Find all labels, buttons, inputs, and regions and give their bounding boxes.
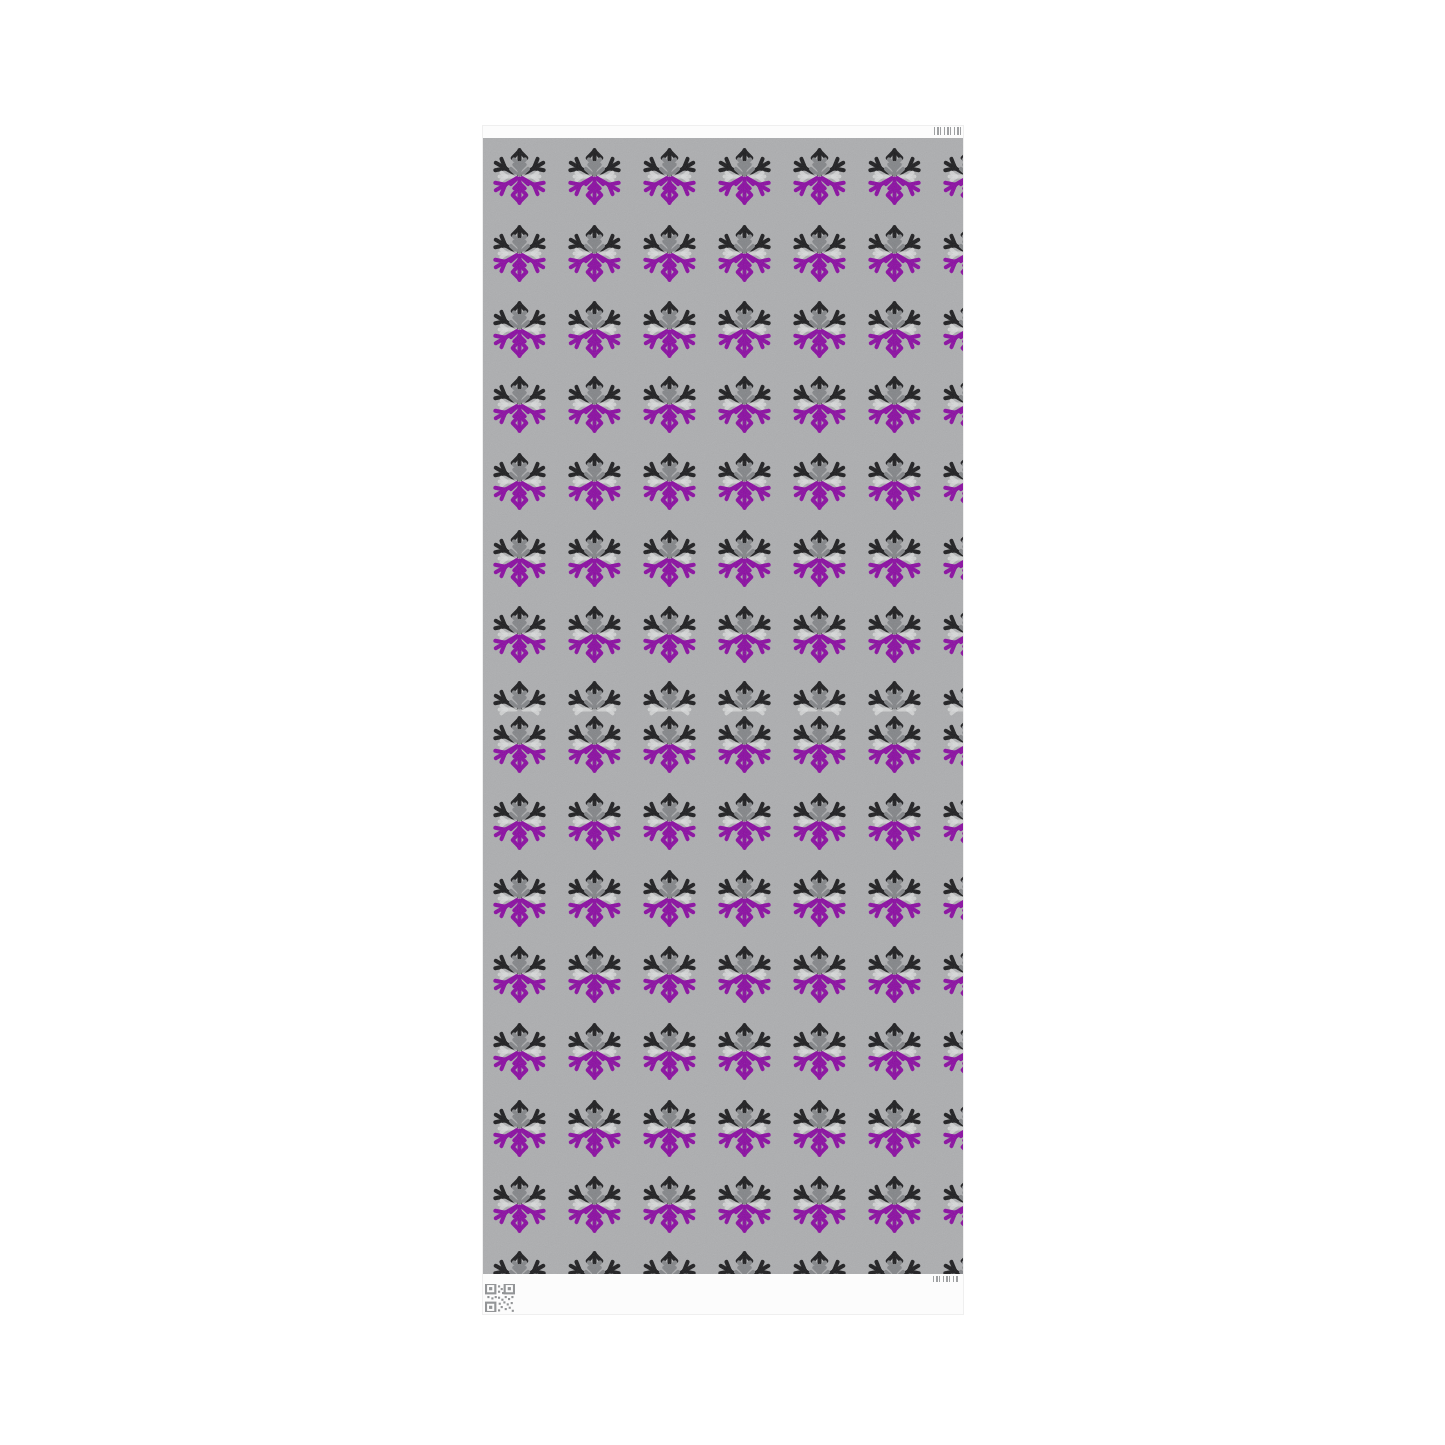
snowflake-geometry: [570, 532, 618, 585]
snowflake-geometry: [495, 1253, 543, 1274]
snowflake-geometry: [945, 795, 963, 848]
snowflake-icon: [641, 946, 698, 1003]
snowflake-geometry: [720, 948, 768, 1001]
snowflake-geometry: [495, 303, 543, 356]
snowflake-icon: [791, 225, 848, 282]
snowflake-geometry: [645, 227, 693, 280]
snowflake-icon: [791, 301, 848, 358]
snowflake-geometry: [870, 872, 918, 925]
snowflake-icon: [566, 453, 623, 510]
snowflake-geometry: [720, 872, 768, 925]
snowflake-geometry: [720, 1025, 768, 1078]
snowflake-icon: [866, 1176, 923, 1233]
snowflake-icon: [866, 530, 923, 587]
snowflake-geometry: [870, 795, 918, 848]
snowflake-icon: [941, 453, 963, 510]
snowflake-geometry: [570, 1102, 618, 1155]
snowflake-icon: [791, 1100, 848, 1157]
snowflake-icon: [641, 301, 698, 358]
snowflake-geometry: [945, 378, 963, 431]
snowflake-icon: [641, 870, 698, 927]
snowflake-icon: [716, 301, 773, 358]
snowflake-geometry: [945, 1253, 963, 1274]
snowflake-icon: [716, 1023, 773, 1080]
snowflake-icon: [566, 1176, 623, 1233]
snowflake-icon: [491, 870, 548, 927]
snowflake-geometry: [570, 455, 618, 508]
snowflake-geometry: [795, 303, 843, 356]
snowflake-geometry: [570, 227, 618, 280]
snowflake-icon: [491, 453, 548, 510]
snowflake-geometry: [645, 948, 693, 1001]
snowflake-icon: [866, 148, 923, 205]
snowflake-geometry: [645, 1025, 693, 1078]
snowflake-icon: [566, 530, 623, 587]
snowflake-geometry: [495, 1102, 543, 1155]
snowflake-geometry: [870, 1253, 918, 1274]
snowflake-geometry: [495, 455, 543, 508]
snowflake-geometry: [570, 872, 618, 925]
snowflake-icon: [866, 606, 923, 663]
snowflake-geometry: [495, 948, 543, 1001]
snowflake-geometry: [645, 608, 693, 661]
snowflake-icon: [566, 870, 623, 927]
snowflake-geometry: [795, 455, 843, 508]
snowflake-geometry: [795, 227, 843, 280]
snowflake-icon: [791, 376, 848, 433]
snowflake-icon: [566, 606, 623, 663]
snowflake-icon: [791, 1023, 848, 1080]
product-mockup: [0, 0, 1445, 1445]
snowflake-geometry: [570, 608, 618, 661]
snowflake-geometry: [720, 795, 768, 848]
snowflake-icon: [866, 376, 923, 433]
snowflake-icon: [641, 530, 698, 587]
snowflake-geometry: [720, 455, 768, 508]
snowflake-geometry: [720, 608, 768, 661]
snowflake-icon: [641, 793, 698, 850]
snowflake-icon: [941, 1100, 963, 1157]
snowflake-geometry: [870, 455, 918, 508]
snowflake-geometry: [870, 150, 918, 203]
snowflake-icon: [716, 530, 773, 587]
barcode-icon: [933, 1276, 959, 1282]
snowflake-geometry: [495, 532, 543, 585]
snowflake-geometry: [495, 872, 543, 925]
snowflake-geometry: [720, 1102, 768, 1155]
snowflake-geometry: [870, 608, 918, 661]
snowflake-geometry: [645, 1253, 693, 1274]
snowflake-geometry: [495, 1178, 543, 1231]
snowflake-geometry: [945, 303, 963, 356]
snowflake-icon: [791, 716, 848, 773]
snowflake-icon: [491, 301, 548, 358]
snowflake-geometry: [795, 608, 843, 661]
snowflake-icon: [641, 148, 698, 205]
snowflake-icon: [641, 716, 698, 773]
snowflake-icon: [716, 793, 773, 850]
snowflake-icon: [941, 1176, 963, 1233]
snowflake-icon: [491, 1100, 548, 1157]
snowflake-icon: [716, 376, 773, 433]
snowflake-icon: [791, 793, 848, 850]
snowflake-geometry: [720, 532, 768, 585]
snowflake-icon: [491, 716, 548, 773]
snowflake-geometry: [870, 1102, 918, 1155]
snowflake-geometry: [945, 718, 963, 771]
snowflake-icon: [641, 225, 698, 282]
snowflake-icon: [566, 1023, 623, 1080]
snowflake-geometry: [645, 795, 693, 848]
snowflake-icon: [866, 1100, 923, 1157]
snowflake-geometry: [945, 608, 963, 661]
snowflake-geometry: [795, 1253, 843, 1274]
snowflake-geometry: [720, 1178, 768, 1231]
snowflake-geometry: [645, 683, 693, 713]
snowflake-geometry: [495, 150, 543, 203]
paper-top-edge: [483, 126, 963, 138]
snowflake-icon: [941, 946, 963, 1003]
snowflake-geometry: [795, 718, 843, 771]
snowflake-icon: [791, 1176, 848, 1233]
snowflake-icon: [791, 946, 848, 1003]
snowflake-geometry: [870, 1025, 918, 1078]
snowflake-geometry: [945, 455, 963, 508]
snowflake-geometry: [795, 1025, 843, 1078]
snowflake-icon: [716, 606, 773, 663]
snowflake-geometry: [570, 795, 618, 848]
snowflake-geometry: [945, 150, 963, 203]
snowflake-geometry: [945, 1025, 963, 1078]
snowflake-geometry: [720, 150, 768, 203]
snowflake-icon: [641, 1023, 698, 1080]
snowflake-icon: [941, 148, 963, 205]
snowflake-geometry: [795, 872, 843, 925]
snowflake-geometry: [870, 1178, 918, 1231]
snowflake-icon: [491, 1023, 548, 1080]
snowflake-geometry: [720, 227, 768, 280]
snowflake-geometry: [720, 683, 768, 713]
snowflake-geometry: [945, 872, 963, 925]
snowflake-icon: [641, 453, 698, 510]
snowflake-icon: [716, 453, 773, 510]
snowflake-geometry: [945, 948, 963, 1001]
snowflake-icon: [941, 376, 963, 433]
snowflake-icon: [491, 606, 548, 663]
snowflake-icon: [866, 1023, 923, 1080]
snowflake-geometry: [495, 378, 543, 431]
snowflake-icon: [491, 148, 548, 205]
snowflake-icon: [491, 946, 548, 1003]
snowflake-geometry: [870, 532, 918, 585]
snowflake-icon: [866, 301, 923, 358]
paper-bottom-edge: [483, 1274, 963, 1314]
snowflake-icon: [866, 793, 923, 850]
snowflake-icon: [866, 225, 923, 282]
snowflake-geometry: [645, 718, 693, 771]
snowflake-geometry: [795, 150, 843, 203]
snowflake-geometry: [945, 683, 963, 713]
snowflake-geometry: [720, 1253, 768, 1274]
snowflake-icon: [641, 1100, 698, 1157]
snowflake-icon: [791, 606, 848, 663]
snowflake-geometry: [870, 683, 918, 713]
snowflake-geometry: [720, 378, 768, 431]
snowflake-icon: [716, 870, 773, 927]
snowflake-geometry: [570, 1253, 618, 1274]
snowflake-icon: [941, 225, 963, 282]
snowflake-icon: [716, 1100, 773, 1157]
snowflake-geometry: [570, 1025, 618, 1078]
snowflake-icon: [941, 870, 963, 927]
snowflake-geometry: [870, 948, 918, 1001]
snowflake-icon: [866, 453, 923, 510]
snowflake-icon: [491, 225, 548, 282]
snowflake-geometry: [570, 150, 618, 203]
snowflake-icon: [641, 606, 698, 663]
snowflake-icon: [866, 716, 923, 773]
snowflake-icon: [791, 453, 848, 510]
snowflake-geometry: [570, 378, 618, 431]
snowflake-icon: [641, 1251, 698, 1274]
snowflake-icon: [791, 870, 848, 927]
snowflake-icon: [716, 1251, 773, 1274]
snowflake-geometry: [645, 455, 693, 508]
snowflake-icon: [791, 148, 848, 205]
snowflake-geometry: [495, 795, 543, 848]
snowflake-geometry: [570, 1178, 618, 1231]
snowflake-geometry: [945, 227, 963, 280]
snowflake-icon: [491, 793, 548, 850]
snowflake-geometry: [720, 718, 768, 771]
snowflake-icon: [941, 1023, 963, 1080]
snowflake-geometry: [570, 683, 618, 713]
snowflake-icon: [716, 148, 773, 205]
snowflake-icon: [866, 1251, 923, 1274]
snowflake-geometry: [870, 227, 918, 280]
barcode-icon: [934, 127, 961, 135]
snowflake-icon: [791, 530, 848, 587]
snowflake-icon: [641, 1176, 698, 1233]
snowflake-geometry: [645, 303, 693, 356]
snowflake-icon: [566, 225, 623, 282]
snowflake-icon: [941, 1251, 963, 1274]
snowflake-geometry: [570, 718, 618, 771]
snowflake-icon: [566, 946, 623, 1003]
snowflake-geometry: [795, 378, 843, 431]
snowflake-geometry: [795, 948, 843, 1001]
snowflake-geometry: [645, 1178, 693, 1231]
snowflake-geometry: [945, 1102, 963, 1155]
snowflake-geometry: [645, 150, 693, 203]
snowflake-icon: [941, 606, 963, 663]
snowflake-icon: [566, 148, 623, 205]
snowflake-icon: [566, 793, 623, 850]
snowflake-icon: [566, 1100, 623, 1157]
snowflake-geometry: [945, 1178, 963, 1231]
snowflake-geometry: [495, 227, 543, 280]
snowflake-geometry: [795, 532, 843, 585]
qr-code-icon: [485, 1284, 515, 1312]
snowflake-geometry: [795, 1102, 843, 1155]
snowflake-icon: [716, 225, 773, 282]
snowflake-icon: [791, 1251, 848, 1274]
snowflake-geometry: [945, 532, 963, 585]
snowflake-geometry: [495, 683, 543, 713]
snowflake-geometry: [795, 795, 843, 848]
snowflake-icon: [491, 1251, 548, 1274]
snowflake-icon: [716, 946, 773, 1003]
snowflake-icon: [941, 530, 963, 587]
snowflake-geometry: [645, 532, 693, 585]
snowflake-icon: [716, 1176, 773, 1233]
snowflake-icon: [491, 530, 548, 587]
snowflake-geometry: [495, 718, 543, 771]
snowflake-geometry: [795, 1178, 843, 1231]
snowflake-geometry: [495, 608, 543, 661]
snowflake-icon: [641, 376, 698, 433]
snowflake-icon: [941, 301, 963, 358]
snowflake-icon: [941, 716, 963, 773]
snowflake-icon: [941, 793, 963, 850]
snowflake-geometry: [795, 683, 843, 713]
snowflake-geometry: [870, 718, 918, 771]
snowflake-geometry: [645, 872, 693, 925]
snowflake-geometry: [495, 1025, 543, 1078]
snowflake-icon: [716, 716, 773, 773]
snowflake-geometry: [570, 303, 618, 356]
snowflake-geometry: [870, 378, 918, 431]
snowflake-icon: [866, 946, 923, 1003]
snowflake-geometry: [720, 303, 768, 356]
snowflake-geometry: [570, 948, 618, 1001]
snowflake-icon: [566, 1251, 623, 1274]
snowflake-geometry: [645, 1102, 693, 1155]
snowflake-icon: [566, 376, 623, 433]
snowflake-icon: [566, 301, 623, 358]
snowflake-icon: [566, 716, 623, 773]
wrapping-paper-sheet: [483, 126, 963, 1314]
snowflake-icon: [491, 1176, 548, 1233]
snowflake-icon: [491, 376, 548, 433]
snowflake-geometry: [870, 303, 918, 356]
pattern-area: [483, 138, 963, 1274]
snowflake-geometry: [645, 378, 693, 431]
snowflake-icon: [866, 870, 923, 927]
